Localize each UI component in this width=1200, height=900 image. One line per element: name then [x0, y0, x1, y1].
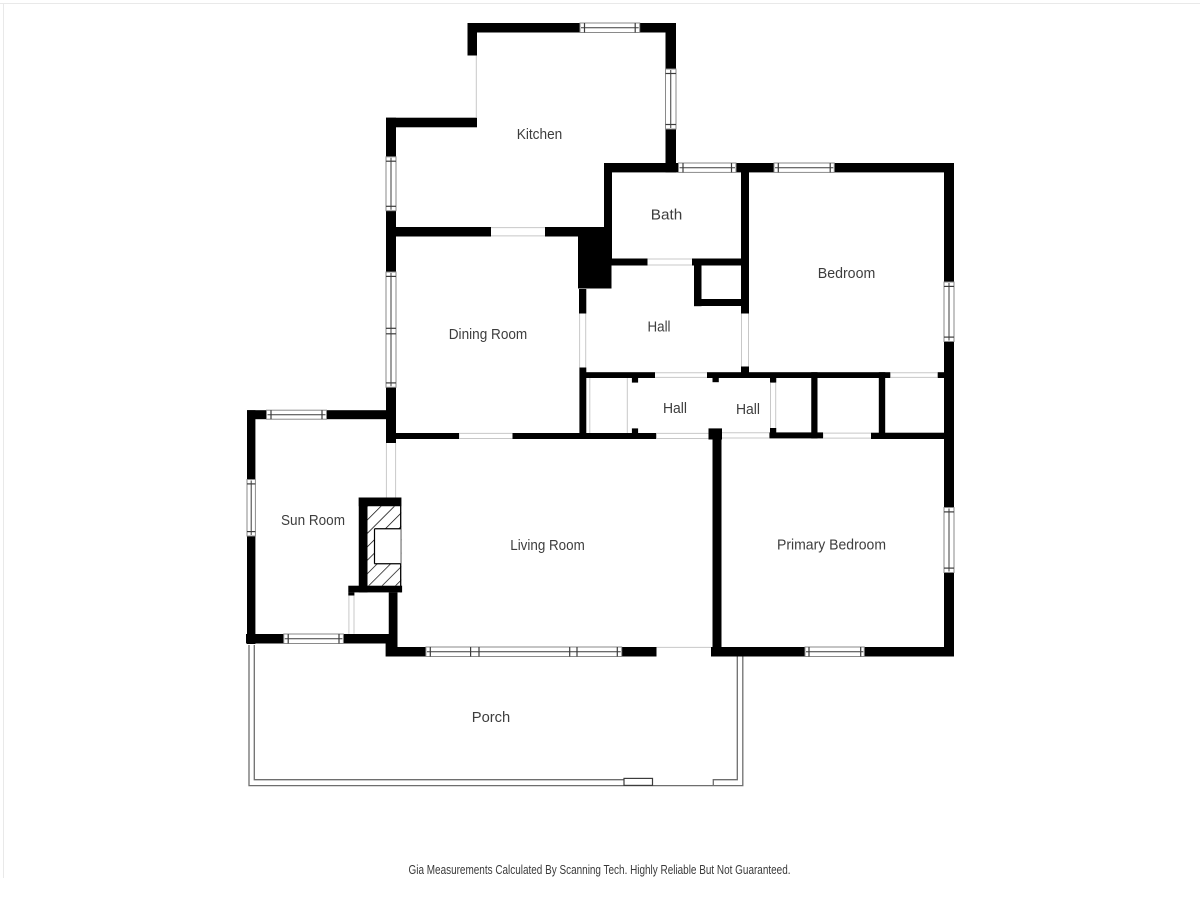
svg-text:Hall: Hall	[736, 402, 760, 418]
svg-text:Sun Room: Sun Room	[281, 513, 345, 529]
svg-text:Porch: Porch	[472, 710, 511, 726]
svg-text:Bedroom: Bedroom	[818, 266, 876, 282]
svg-text:Primary Bedroom: Primary Bedroom	[777, 538, 886, 554]
svg-text:Dining Room: Dining Room	[449, 327, 528, 343]
svg-text:Living Room: Living Room	[510, 538, 585, 554]
svg-text:Gia Measurements Calculated By: Gia Measurements Calculated By Scanning …	[409, 863, 791, 877]
svg-text:Hall: Hall	[648, 320, 671, 336]
svg-text:Bath: Bath	[651, 208, 683, 224]
svg-text:Hall: Hall	[663, 401, 687, 417]
svg-text:Kitchen: Kitchen	[517, 127, 563, 143]
